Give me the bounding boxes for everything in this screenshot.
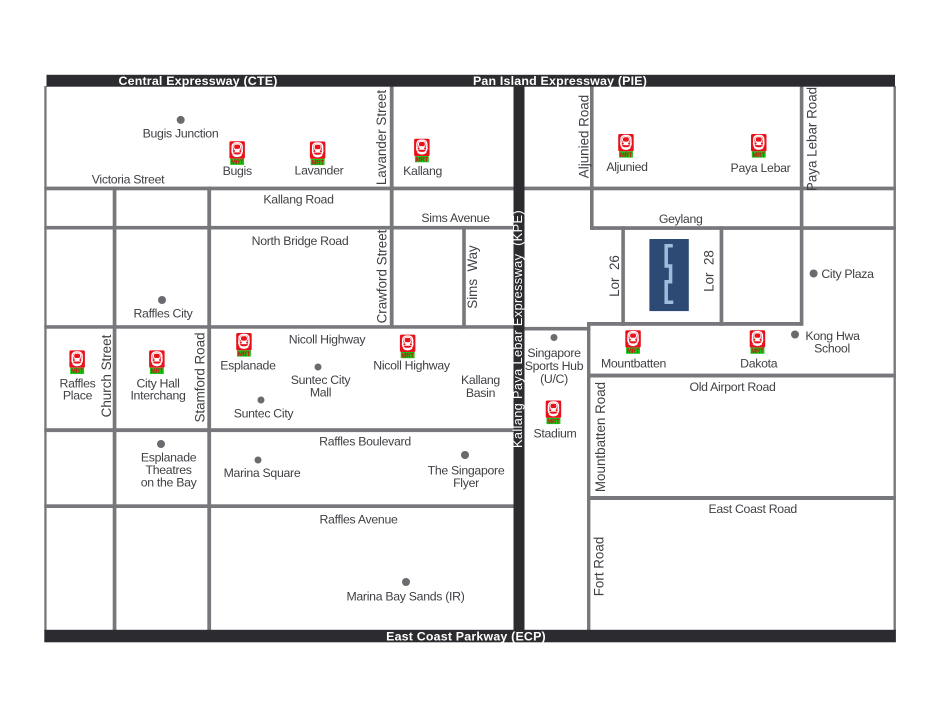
svg-text:Central Expressway (CTE): Central Expressway (CTE)	[118, 74, 277, 88]
svg-text:Geylang: Geylang	[659, 212, 703, 226]
svg-text:Esplanade: Esplanade	[220, 359, 276, 373]
svg-text:Lor 28: Lor 28	[702, 250, 717, 292]
svg-text:City Plaza: City Plaza	[821, 267, 874, 281]
svg-text:North Bridge Road: North Bridge Road	[252, 234, 349, 248]
svg-text:Kallang: Kallang	[461, 373, 500, 387]
svg-text:Aljunied: Aljunied	[606, 160, 648, 174]
svg-text:Sims Avenue: Sims Avenue	[421, 211, 490, 225]
svg-text:Singapore: Singapore	[527, 346, 581, 360]
svg-text:Victoria Street: Victoria Street	[92, 173, 165, 187]
svg-text:Mountbatten: Mountbatten	[601, 357, 667, 371]
svg-text:East Coast Road: East Coast Road	[708, 502, 797, 516]
svg-text:Marina Square: Marina Square	[224, 466, 301, 480]
svg-text:Raffles Avenue: Raffles Avenue	[319, 513, 398, 527]
svg-text:Aljunied Road: Aljunied Road	[577, 95, 592, 178]
svg-text:Bugis Junction: Bugis Junction	[143, 127, 219, 141]
svg-text:Paya Lebar Road: Paya Lebar Road	[805, 87, 820, 191]
svg-text:Fort Road: Fort Road	[592, 537, 607, 597]
svg-text:Kallang Paya Lebar Expressway: Kallang Paya Lebar Expressway (KPE)	[510, 210, 525, 448]
svg-text:Kallang Road: Kallang Road	[263, 193, 334, 207]
svg-text:Old Airport Road: Old Airport Road	[689, 380, 776, 394]
svg-text:Lor 26: Lor 26	[607, 255, 622, 297]
svg-text:Bugis: Bugis	[223, 164, 252, 178]
svg-text:Nicoll Highway: Nicoll Highway	[373, 359, 451, 373]
svg-text:Church Street: Church Street	[99, 334, 114, 417]
svg-text:Mountbatten Road: Mountbatten Road	[593, 382, 608, 492]
svg-text:Kallang: Kallang	[403, 164, 442, 178]
svg-text:Basin: Basin	[466, 386, 496, 400]
svg-text:Lavander: Lavander	[295, 164, 344, 178]
svg-text:Sims Way: Sims Way	[465, 245, 480, 309]
svg-text:Stamford Road: Stamford Road	[193, 332, 208, 422]
svg-text:(U/C): (U/C)	[540, 372, 568, 386]
svg-text:School: School	[814, 342, 850, 356]
svg-text:on the Bay: on the Bay	[141, 476, 198, 490]
svg-text:Marina Bay Sands (IR): Marina Bay Sands (IR)	[346, 590, 464, 604]
svg-text:Lavander Street: Lavander Street	[374, 90, 389, 186]
svg-text:Sports Hub: Sports Hub	[525, 359, 584, 373]
svg-text:Raffles Boulevard: Raffles Boulevard	[319, 435, 411, 449]
svg-text:Stadium: Stadium	[533, 427, 576, 441]
svg-text:Raffles City: Raffles City	[133, 307, 193, 321]
svg-text:Mall: Mall	[310, 386, 331, 400]
svg-text:Suntec City: Suntec City	[234, 407, 295, 421]
svg-text:Flyer: Flyer	[453, 476, 479, 490]
svg-text:Place: Place	[63, 389, 93, 403]
svg-text:Dakota: Dakota	[740, 357, 778, 371]
svg-text:Paya Lebar: Paya Lebar	[731, 161, 791, 175]
svg-text:Crawford Street: Crawford Street	[375, 229, 390, 323]
svg-text:Interchang: Interchang	[130, 389, 186, 403]
svg-text:Pan Island Expressway (PIE): Pan Island Expressway (PIE)	[473, 74, 647, 88]
svg-text:Nicoll Highway: Nicoll Highway	[289, 333, 367, 347]
svg-text:East Coast Parkway (ECP): East Coast Parkway (ECP)	[386, 629, 546, 643]
